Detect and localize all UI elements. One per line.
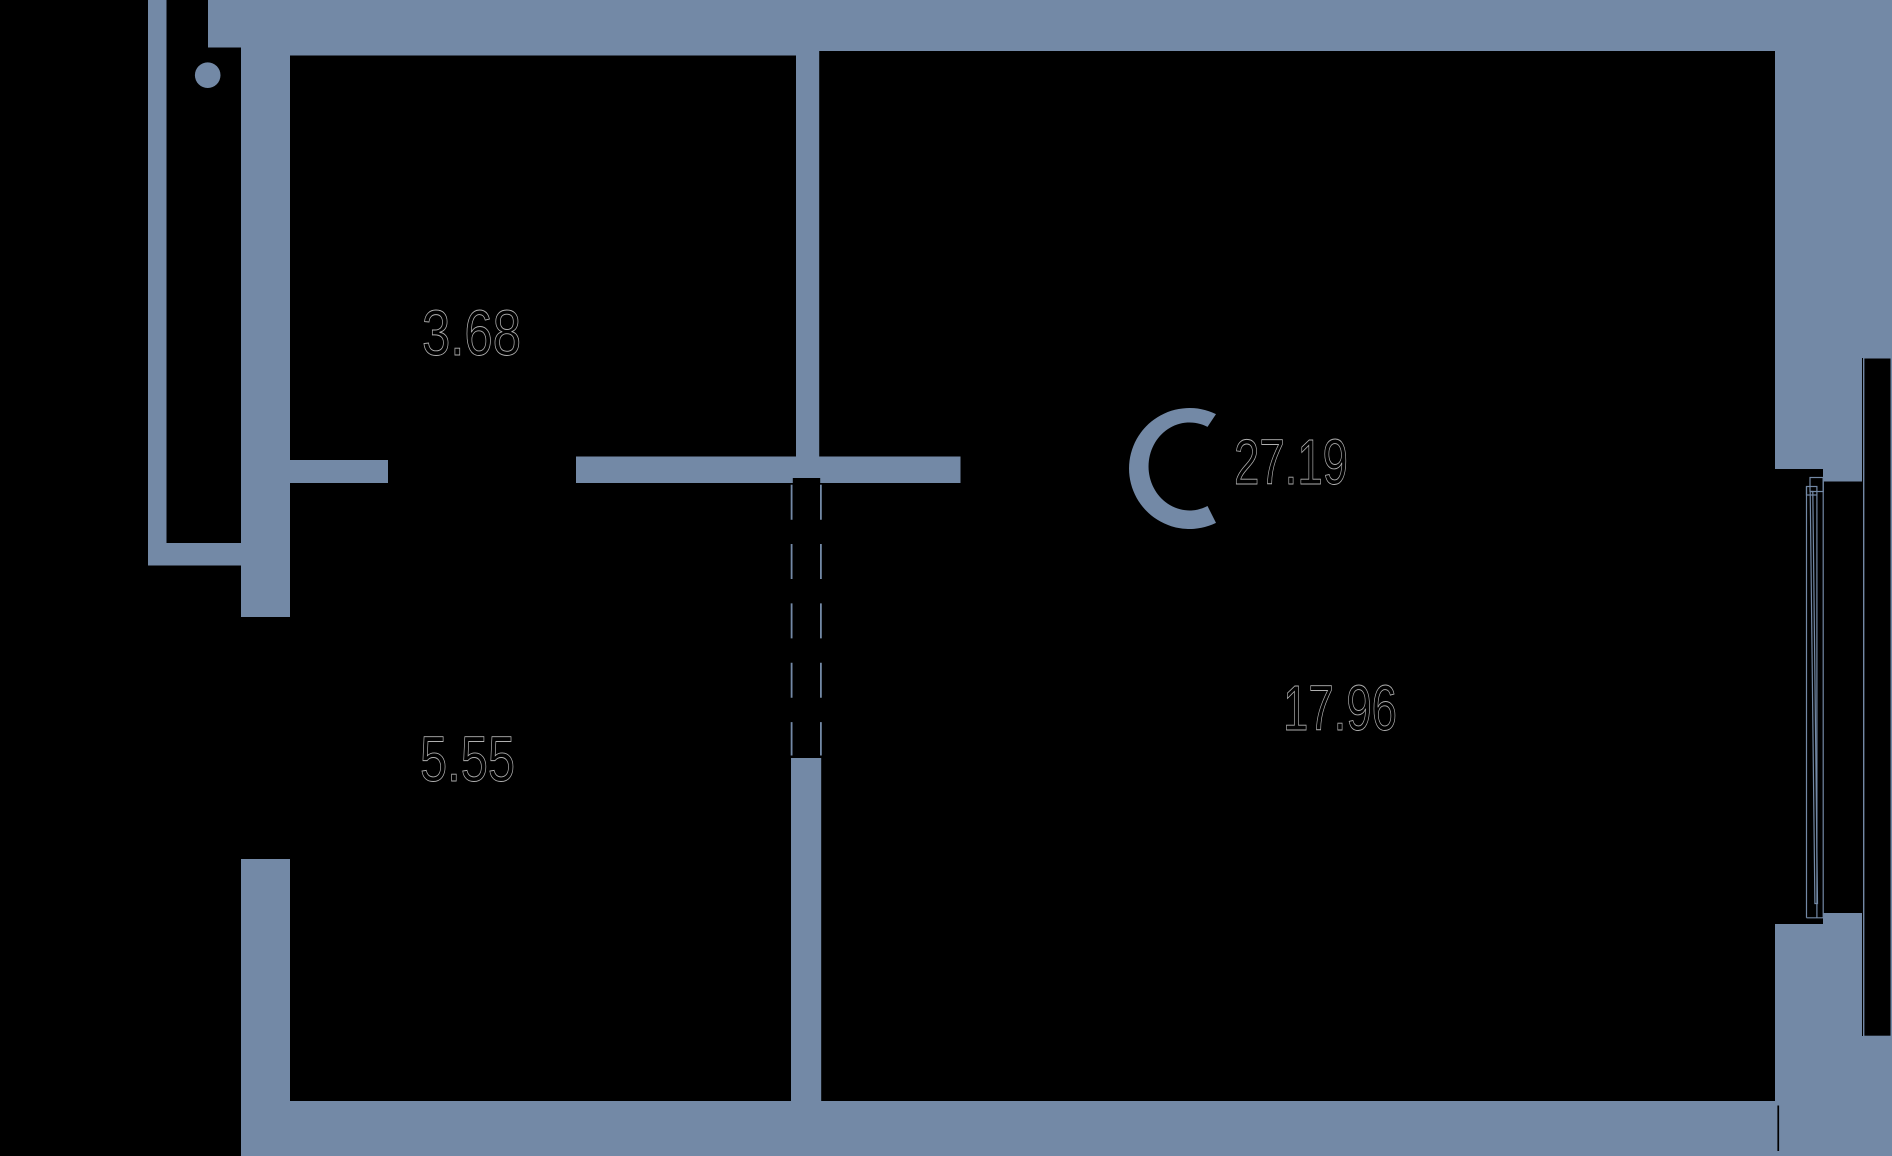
svg-text:3.68: 3.68 xyxy=(422,297,521,369)
svg-text:17.96: 17.96 xyxy=(1283,672,1397,744)
svg-text:5.55: 5.55 xyxy=(420,723,515,795)
svg-text:27.19: 27.19 xyxy=(1234,426,1348,498)
